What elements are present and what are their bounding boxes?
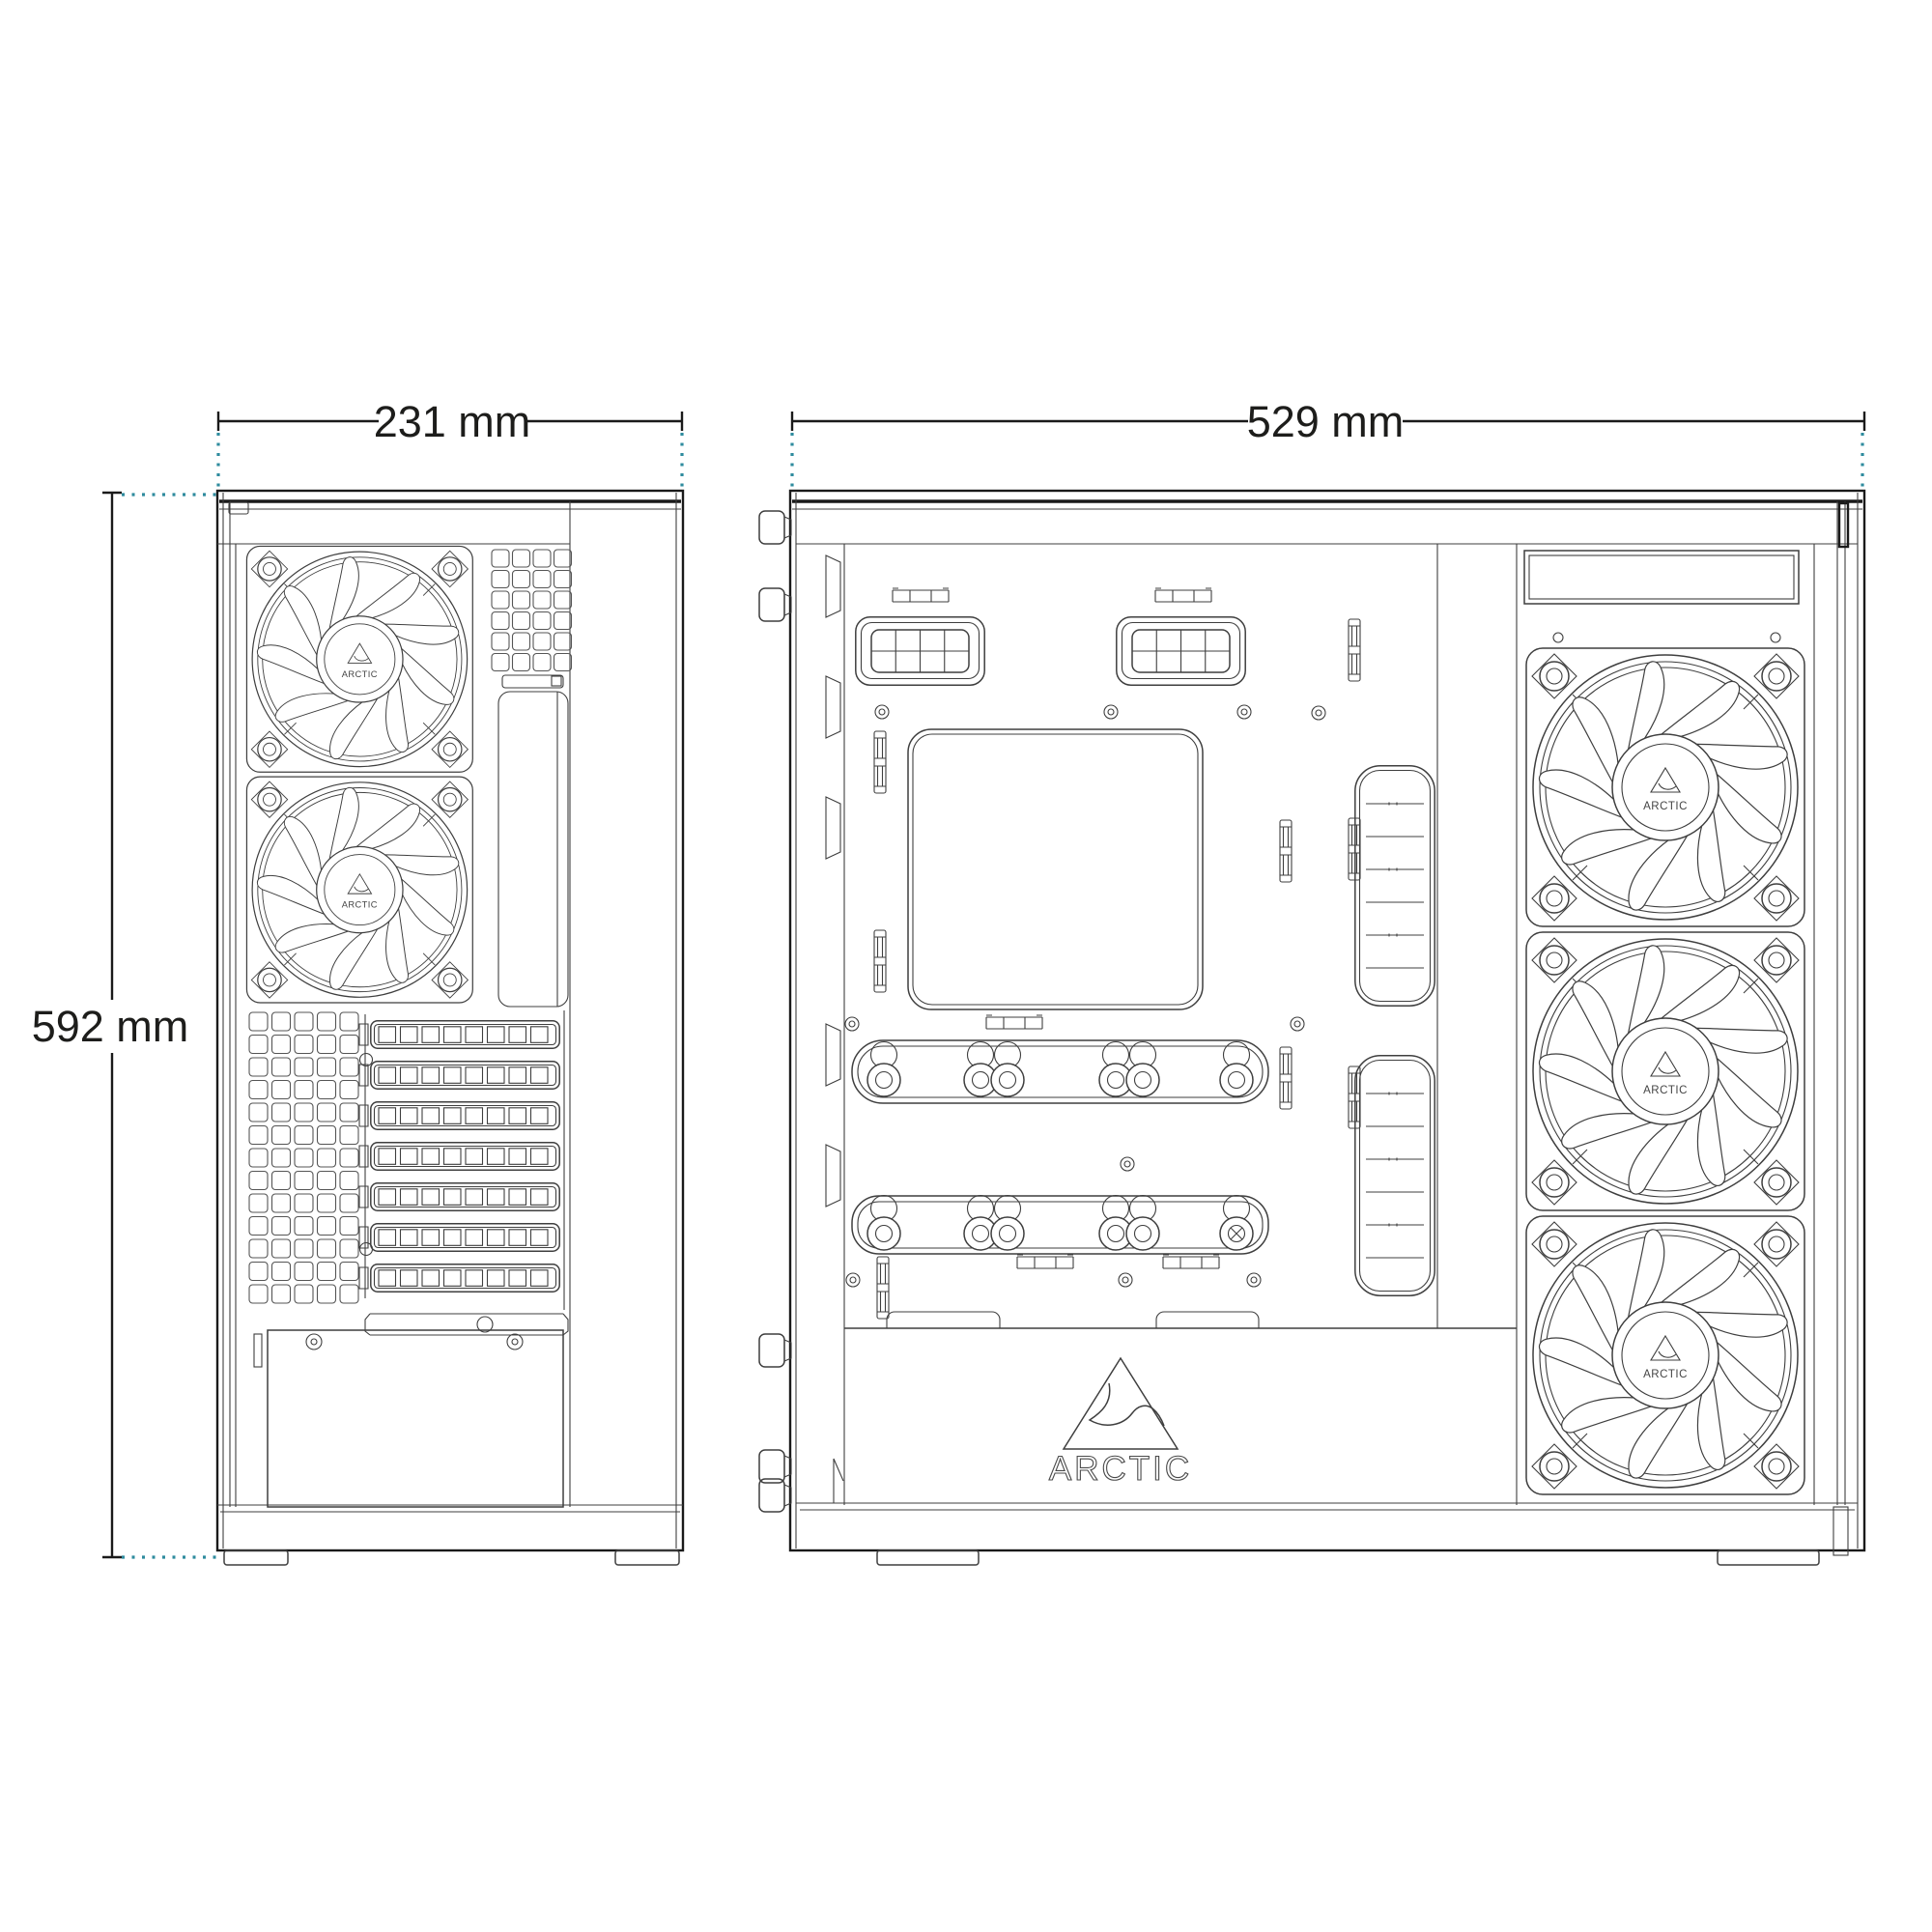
- arctic-wordmark: ARCTIC: [1049, 1450, 1192, 1488]
- case-foot: [877, 1550, 979, 1565]
- fan-side-2: [1526, 932, 1804, 1210]
- case-foot: [224, 1550, 288, 1565]
- fan-side-3: [1526, 1216, 1804, 1494]
- vent-grid-pci: [247, 1010, 361, 1306]
- front-io-knobs: [759, 511, 791, 1512]
- vent-grid-top: [490, 548, 573, 672]
- fan-front-1: [246, 546, 472, 772]
- dimension-label-side-depth: 529 mm: [1247, 397, 1405, 446]
- front-view-drawing: [217, 491, 683, 1565]
- fan-side-1: [1526, 648, 1804, 926]
- case-foot: [1718, 1550, 1819, 1565]
- dimension-side-depth: 529 mm: [792, 397, 1864, 446]
- dimension-front-width: 231 mm: [218, 397, 682, 446]
- dimension-label-height: 592 mm: [32, 1002, 189, 1051]
- side-view-drawing: ARCTIC: [759, 491, 1864, 1565]
- dimension-height: 592 mm: [32, 493, 189, 1557]
- technical-drawing: ARCTIC: [0, 0, 1932, 1932]
- fan-front-2: [246, 777, 472, 1003]
- dimension-label-front-width: 231 mm: [374, 397, 531, 446]
- case-foot: [615, 1550, 679, 1565]
